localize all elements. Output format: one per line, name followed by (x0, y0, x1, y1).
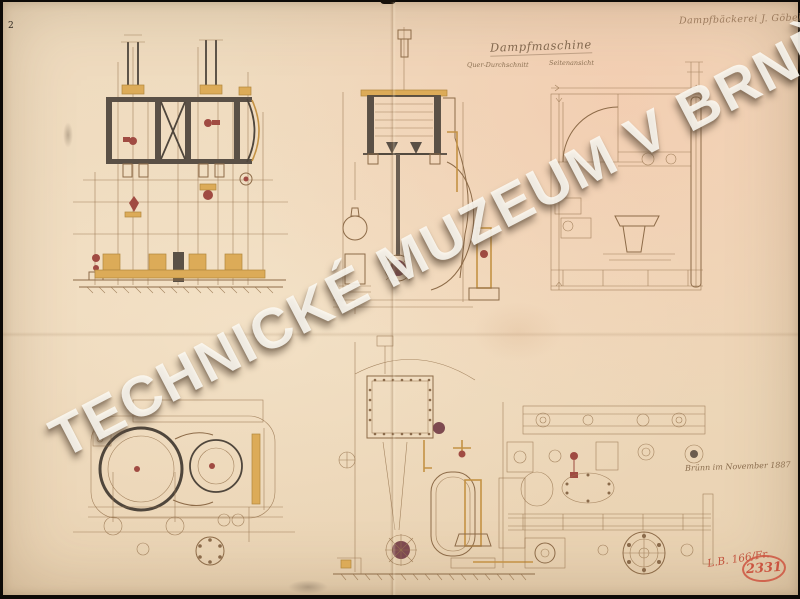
view-label-side-view: Seitenansicht (549, 59, 594, 67)
drawing-front-cross-section (73, 35, 288, 293)
scanned-drawing-sheet: 2 Dampfbäckerei J. Göbel Dampfmaschine Q… (0, 0, 800, 599)
drawing-condenser-section (333, 336, 535, 580)
paper-stain (63, 122, 73, 148)
paper-sheet: 2 Dampfbäckerei J. Göbel Dampfmaschine Q… (3, 2, 798, 595)
sheet-corner-mark: 2 (8, 21, 14, 31)
drawing-plan-view-bed (507, 406, 713, 574)
paper-stain (473, 302, 563, 362)
view-label-cross-section: Quer-Durchschnitt (467, 61, 529, 69)
fold-crease-horizontal (3, 332, 798, 337)
stamp-number: 2331 (745, 560, 782, 577)
paper-stain (288, 580, 328, 594)
